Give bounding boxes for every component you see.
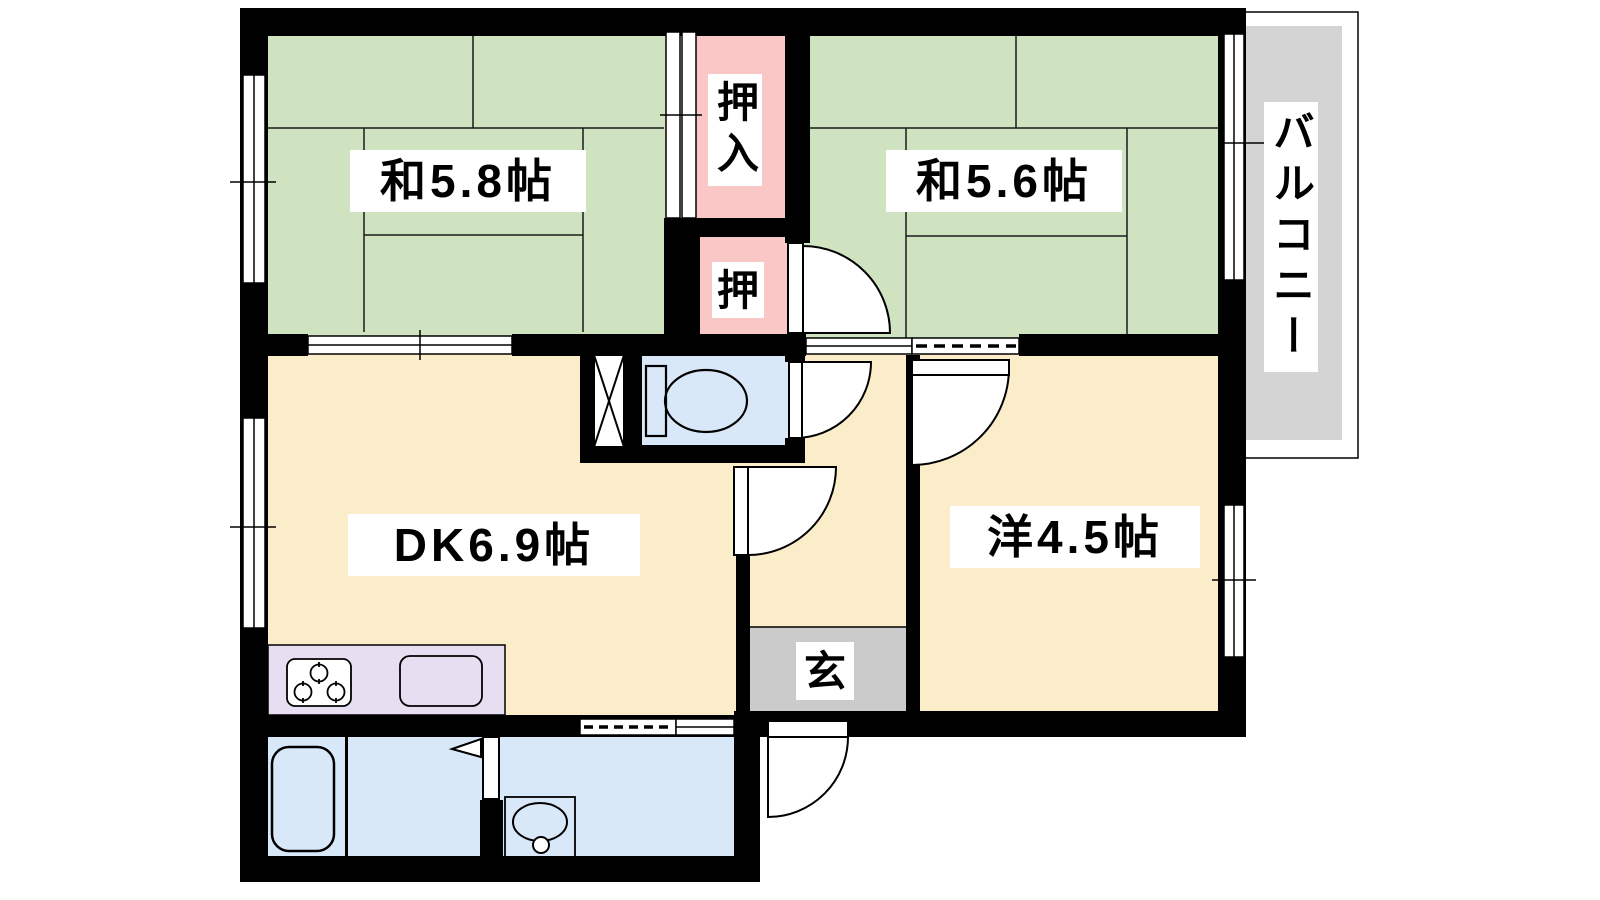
wall-bottom-left xyxy=(240,856,760,882)
sliding-door-washroom xyxy=(580,719,734,735)
washbasin-icon xyxy=(505,797,575,861)
label-wa56: 和5.6帖 xyxy=(916,155,1092,207)
label-yo45: 洋4.5帖 xyxy=(987,511,1163,563)
label-oshi: 押 xyxy=(717,267,759,314)
kitchen-counter xyxy=(268,645,505,715)
label-genkan: 玄 xyxy=(804,648,846,695)
toilet-icon xyxy=(642,352,789,445)
wall-closet-right xyxy=(785,28,810,243)
label-wa58: 和5.8帖 xyxy=(380,155,556,207)
threshold-wa56 xyxy=(806,338,912,354)
floor-plan: 和5.8帖 和5.6帖 DK6.9帖 洋4.5帖 押入 押 玄 バルコニー xyxy=(0,0,1600,900)
label-balcony: バルコニー xyxy=(1268,110,1315,365)
bathroom-partition xyxy=(345,737,348,856)
pipe-space-x-icon xyxy=(594,355,624,447)
label-oshiire: 押入 xyxy=(712,80,759,182)
wall-top xyxy=(240,8,1246,36)
dashed-opening-yo45-top xyxy=(912,338,1019,354)
kitchen-sink-icon xyxy=(400,656,482,706)
wall-washroom-stub xyxy=(480,800,503,856)
floor-plan-svg: 和5.8帖 和5.6帖 DK6.9帖 洋4.5帖 押入 押 玄 バルコニー xyxy=(0,0,1600,900)
label-dk: DK6.9帖 xyxy=(394,519,594,571)
wall-genkan-left xyxy=(736,555,750,711)
